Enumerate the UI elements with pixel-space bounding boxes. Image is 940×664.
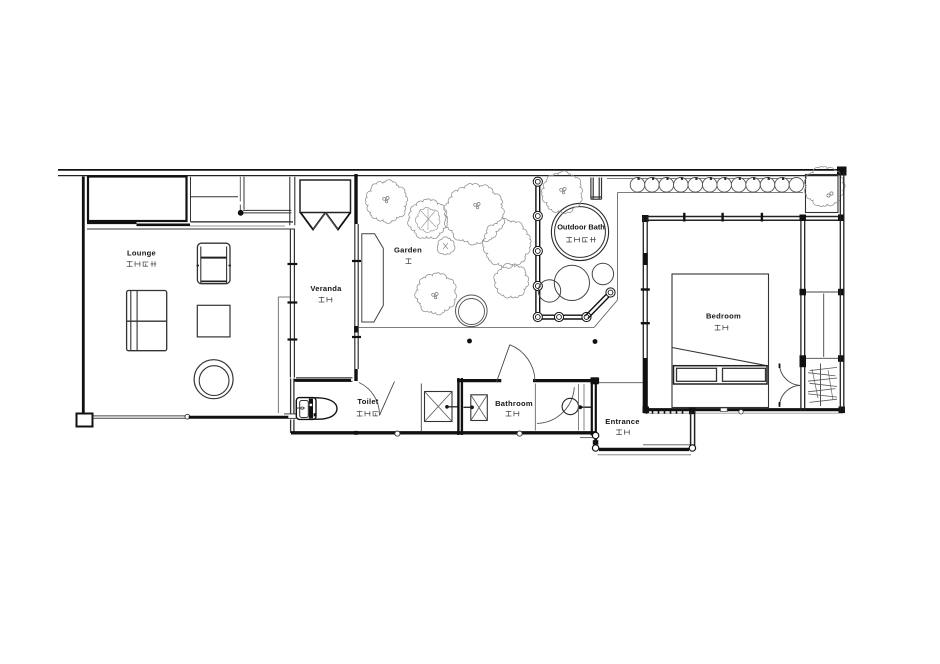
svg-text:Bathroom: Bathroom: [495, 399, 533, 408]
svg-text:Entrance: Entrance: [605, 417, 640, 426]
svg-text:Outdoor Bath: Outdoor Bath: [557, 223, 605, 232]
svg-text:Lounge: Lounge: [127, 249, 156, 258]
svg-text:Bedroom: Bedroom: [706, 312, 741, 321]
svg-text:Veranda: Veranda: [310, 284, 342, 293]
svg-text:Toilet: Toilet: [357, 397, 378, 406]
svg-text:Garden: Garden: [394, 246, 422, 255]
